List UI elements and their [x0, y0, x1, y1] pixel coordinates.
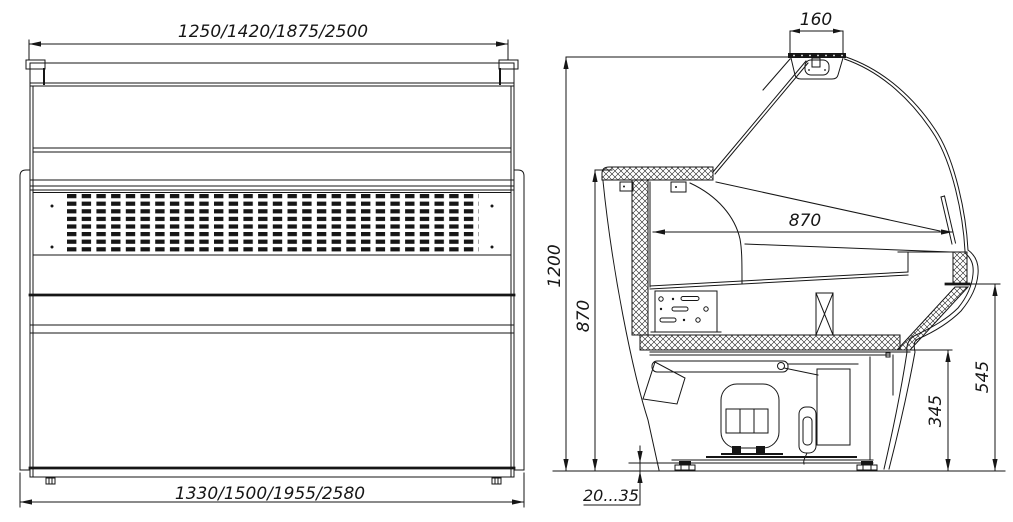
- compressor: [721, 384, 782, 454]
- side-view: 160: [545, 10, 1005, 505]
- front-view: 1250/1420/1875/2500: [20, 22, 524, 507]
- arrow-left: [29, 41, 41, 46]
- grille-screw: [491, 205, 494, 208]
- display-deck: [650, 182, 955, 289]
- condenser-unit: [817, 369, 850, 445]
- side-left-foot: [675, 461, 695, 470]
- dim-top-widths: 1250/1420/1875/2500: [178, 22, 368, 42]
- front-height-dimension: 545: [969, 284, 1000, 471]
- side-right-foot: [857, 461, 877, 470]
- back-outer-cladding: [603, 181, 659, 470]
- front-body-edges: [30, 63, 514, 477]
- front-sill: [953, 252, 967, 284]
- display-case-drawing: 1250/1420/1875/2500: [0, 0, 1013, 522]
- front-top-dimension: 1250/1420/1875/2500: [29, 22, 508, 60]
- grille-screw: [51, 246, 54, 249]
- dim-back-height: 870: [574, 300, 594, 332]
- dim-foot-adjustment: 20...35: [583, 486, 639, 505]
- cross-brace: [816, 293, 833, 335]
- grille-screw: [491, 246, 494, 249]
- back-inner-liner: [690, 183, 742, 284]
- front-bottom-dimension: 1330/1500/1955/2580: [20, 473, 524, 507]
- machine-compartment: [643, 352, 910, 464]
- grille-screw: [51, 205, 54, 208]
- dim-overall-height: 1200: [545, 244, 565, 287]
- dim-front-height: 545: [973, 361, 993, 393]
- drain-flap: [643, 362, 685, 404]
- arrow-right: [496, 41, 508, 46]
- technical-drawing-page: 1250/1420/1875/2500: [0, 0, 1013, 522]
- front-curved-glass: [845, 57, 969, 251]
- display-depth-dimension: 870: [653, 211, 953, 235]
- side-canopy-lamp: [788, 53, 846, 79]
- back-height-dimension: 870: [574, 170, 612, 471]
- slide-rail: [652, 361, 788, 372]
- rear-glass: [713, 59, 808, 174]
- dim-front-lower-height: 345: [926, 395, 946, 427]
- front-sloped-panel: [897, 287, 968, 350]
- front-canopy-rail: [26, 60, 518, 86]
- back-counter-top: [602, 167, 713, 192]
- receiver-cylinder: [799, 407, 816, 464]
- foot-adjust-dimension: 20...35: [583, 446, 674, 505]
- under-deck-units: [649, 291, 833, 335]
- front-ventilation-grille: [51, 194, 494, 254]
- dim-canopy-depth: 160: [800, 10, 832, 30]
- lamp-housing: [791, 58, 843, 79]
- side-canopy-dimension: 160: [790, 10, 843, 53]
- bolt: [778, 363, 785, 370]
- dim-bottom-widths: 1330/1500/1955/2580: [175, 484, 365, 504]
- arrow-left: [20, 499, 32, 504]
- front-right-foot: [492, 478, 501, 484]
- front-left-foot: [46, 478, 55, 484]
- arrow-right: [512, 499, 524, 504]
- dim-display-depth: 870: [789, 211, 821, 231]
